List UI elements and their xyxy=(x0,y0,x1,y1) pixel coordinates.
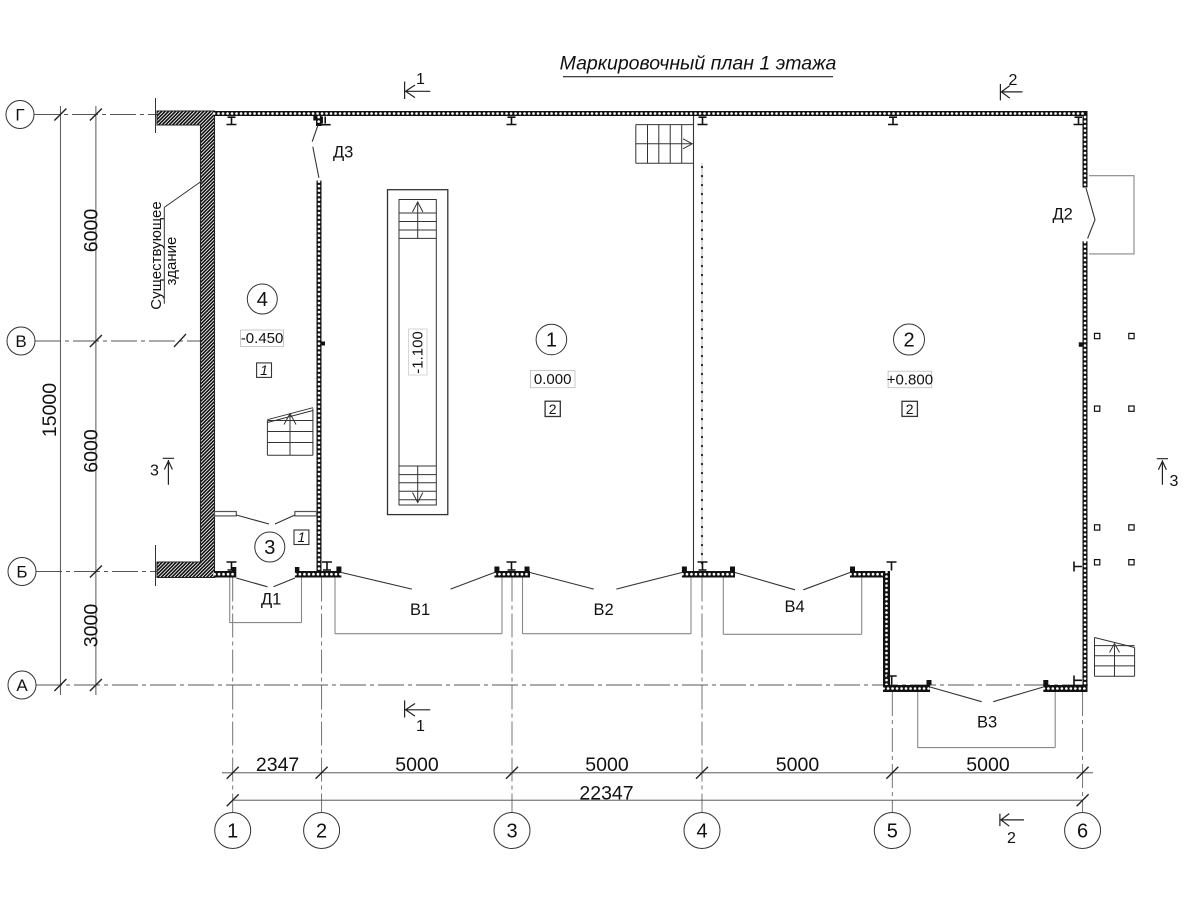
svg-text:15000: 15000 xyxy=(39,383,61,437)
svg-text:-1.100: -1.100 xyxy=(410,331,427,374)
svg-text:Б: Б xyxy=(16,563,27,582)
svg-text:3: 3 xyxy=(150,463,159,480)
svg-text:2: 2 xyxy=(906,401,914,417)
svg-text:В1: В1 xyxy=(410,601,430,619)
svg-text:здание: здание xyxy=(163,237,180,286)
svg-text:1: 1 xyxy=(260,362,268,378)
svg-text:1: 1 xyxy=(416,71,425,88)
svg-text:6000: 6000 xyxy=(81,429,103,473)
svg-text:5000: 5000 xyxy=(966,754,1010,776)
svg-text:6: 6 xyxy=(1077,821,1088,843)
svg-text:3: 3 xyxy=(264,537,275,559)
svg-text:1: 1 xyxy=(227,821,238,843)
svg-text:1: 1 xyxy=(546,330,557,352)
svg-text:3: 3 xyxy=(506,821,517,843)
svg-text:Маркировочный план 1 этажа: Маркировочный план 1 этажа xyxy=(560,53,837,75)
svg-text:3000: 3000 xyxy=(81,604,103,648)
svg-text:2: 2 xyxy=(1007,830,1016,847)
svg-text:6000: 6000 xyxy=(81,209,103,253)
svg-text:В3: В3 xyxy=(977,714,997,732)
svg-text:0.000: 0.000 xyxy=(534,371,572,388)
svg-text:-0.450: -0.450 xyxy=(241,330,284,347)
svg-text:2347: 2347 xyxy=(256,754,299,776)
svg-text:5: 5 xyxy=(887,821,898,843)
svg-text:Д3: Д3 xyxy=(333,144,353,162)
svg-text:5000: 5000 xyxy=(585,754,629,776)
svg-text:1: 1 xyxy=(298,529,306,545)
svg-text:А: А xyxy=(16,676,28,695)
svg-text:1: 1 xyxy=(416,718,425,735)
svg-text:2: 2 xyxy=(316,821,327,843)
svg-text:В4: В4 xyxy=(785,598,805,616)
svg-text:3: 3 xyxy=(1170,473,1179,490)
svg-text:4: 4 xyxy=(257,289,268,311)
svg-text:5000: 5000 xyxy=(395,754,439,776)
svg-text:Д1: Д1 xyxy=(261,591,281,609)
svg-text:2: 2 xyxy=(1009,72,1018,89)
svg-text:+0.800: +0.800 xyxy=(887,371,933,388)
svg-text:Г: Г xyxy=(15,106,24,125)
svg-text:4: 4 xyxy=(696,821,707,843)
svg-text:2: 2 xyxy=(903,330,914,352)
svg-text:22347: 22347 xyxy=(579,783,633,805)
svg-text:В: В xyxy=(15,332,26,351)
svg-text:В2: В2 xyxy=(594,601,614,619)
svg-text:Д2: Д2 xyxy=(1053,206,1073,224)
svg-text:5000: 5000 xyxy=(776,754,820,776)
svg-text:2: 2 xyxy=(549,401,557,417)
